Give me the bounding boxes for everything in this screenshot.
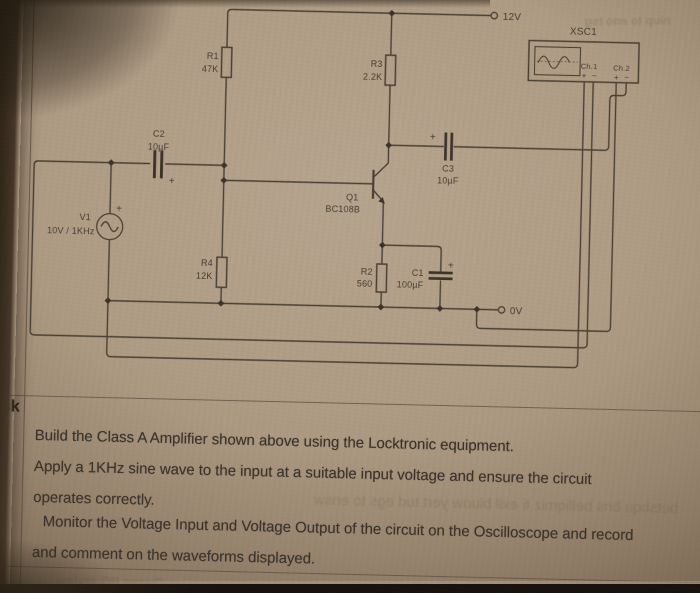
table-top-border [0, 395, 700, 412]
resistor-r1: R1 47K [202, 47, 232, 78]
c2-polarity-plus: + [169, 176, 175, 187]
supply-12v-label: 12V [503, 12, 522, 23]
c1-ref-label: C1 [412, 268, 424, 278]
r4-value-label: 12K [196, 271, 213, 281]
supply-12v-terminal [491, 12, 498, 19]
c1-polarity-plus: + [448, 261, 454, 272]
q1-ref-label: Q1 [346, 192, 359, 202]
r1-value-label: 47K [202, 64, 219, 74]
r3-body [385, 55, 396, 85]
r2-ref-label: R2 [361, 267, 373, 277]
c2-plate-left [153, 150, 157, 178]
task-label-fragment: sk [1, 397, 20, 416]
junction-dot [220, 177, 227, 184]
emitter-arrow [378, 197, 385, 204]
source-bottom-wire [108, 240, 109, 301]
xsc1-ref-label: XSC1 [570, 26, 597, 38]
r3-collector-wire [389, 85, 390, 145]
circuit-wires [30, 5, 628, 369]
r2-body [376, 264, 387, 292]
junction-dot [379, 242, 386, 249]
table-vertical-border [20, 0, 35, 593]
xsc1-ch2-label: Ch.2 [613, 63, 630, 72]
junction-dot [104, 297, 111, 304]
c2-ref-label: C2 [153, 129, 165, 139]
signal-source-v1: + V1 10V / 1KHz [47, 202, 123, 240]
junction-dot [217, 300, 224, 307]
capacitor-c2: C2 10µF + [147, 129, 176, 188]
c2-plate-right [160, 150, 164, 178]
c3-value-label: 10µF [437, 175, 459, 186]
junction-dot [108, 159, 115, 166]
xsc1-waveform-icon [538, 56, 569, 69]
r1-ref-label: R1 [207, 51, 219, 61]
c2-value-label: 10µF [148, 142, 170, 153]
junction-dot [436, 305, 443, 312]
xsc1-ch1-label: Ch.1 [581, 62, 598, 71]
scope-ch2pos-ground-wire [476, 79, 616, 331]
r3-value-label: 2.2K [363, 72, 383, 82]
c1-ground-wire [440, 280, 441, 308]
capacitor-c1: + C1 100µF [397, 259, 454, 290]
ground-0v-terminal [498, 307, 505, 314]
v1-sine-icon [101, 222, 118, 232]
supply-terminals: 12V 0V [484, 12, 530, 318]
r4-body [216, 257, 227, 287]
xsc1-display-axis [537, 61, 578, 62]
instruction-line: operates correctly. [33, 489, 155, 509]
c3-plate-right [450, 133, 453, 161]
collector-output-wire [389, 145, 444, 146]
c1-plate-bottom [429, 277, 453, 280]
worksheet-photo: Q1 BC108B R1 47K R3 2.2K R4 12K [0, 0, 700, 593]
c3-ref-label: C3 [442, 163, 454, 173]
capacitor-c3: + C3 10µF [429, 132, 460, 186]
source-top-wire [110, 163, 111, 214]
xsc1-ch1-polarity: + − [582, 71, 599, 80]
q1-value-label: BC108B [325, 204, 360, 215]
oscilloscope-xsc1: XSC1 Ch.1 + − Ch.2 + − [528, 25, 639, 83]
junction-dot [221, 162, 228, 169]
junction-dot [385, 142, 392, 149]
table-bottom-border [0, 566, 700, 583]
ground-0v-label: 0V [510, 306, 523, 317]
r2-value-label: 560 [357, 278, 373, 288]
base-wire [224, 180, 373, 184]
r1-body [221, 47, 232, 77]
junction-dot [388, 10, 395, 17]
v1-ref-label: V1 [79, 212, 91, 222]
v1-polarity-plus: + [116, 204, 122, 215]
transistor-collector-lead [373, 145, 388, 178]
resistor-r2: R2 560 [357, 263, 387, 292]
output-scope-wire [454, 79, 627, 151]
junction-dot [473, 306, 480, 313]
scope-ch1pos-ground-wire [107, 71, 585, 368]
r4-ref-label: R4 [201, 258, 213, 268]
xsc1-ch2-polarity: + − [614, 73, 631, 82]
r3-ref-label: R3 [371, 59, 383, 69]
page-content: Q1 BC108B R1 47K R3 2.2K R4 12K [0, 0, 700, 593]
transistor-q1: Q1 BC108B [325, 144, 389, 245]
input-node-wire [165, 164, 224, 165]
c3-plate-left [444, 133, 447, 161]
transistor-base-bar [373, 170, 374, 199]
r3-top-wire [391, 13, 392, 55]
resistor-r4: R4 12K [196, 257, 227, 288]
junction-dot [377, 304, 384, 311]
c3-polarity-plus: + [430, 132, 436, 143]
resistor-r3: R3 2.2K [363, 55, 396, 86]
supply-rail-wire [227, 9, 491, 53]
v1-value-label: 10V / 1KHz [47, 225, 95, 236]
c1-value-label: 100µF [397, 279, 424, 290]
